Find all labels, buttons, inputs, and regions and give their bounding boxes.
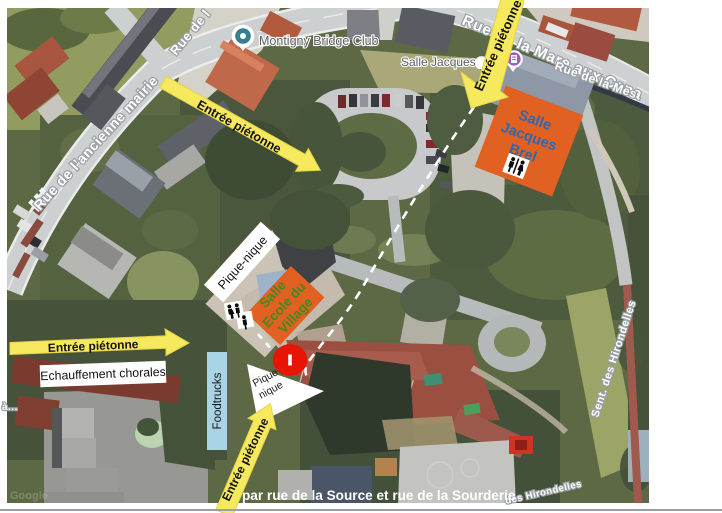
svg-text:par rue de la Source et rue de: par rue de la Source et rue de la Sourde… bbox=[242, 488, 516, 503]
svg-text:Google: Google bbox=[10, 490, 48, 502]
svg-text:Montigny Bridge Club: Montigny Bridge Club bbox=[259, 34, 379, 48]
svg-text:Foodtrucks: Foodtrucks bbox=[212, 372, 224, 429]
svg-text:à...: à... bbox=[2, 402, 18, 413]
svg-text:Salle Jacques B: Salle Jacques B bbox=[401, 55, 487, 69]
